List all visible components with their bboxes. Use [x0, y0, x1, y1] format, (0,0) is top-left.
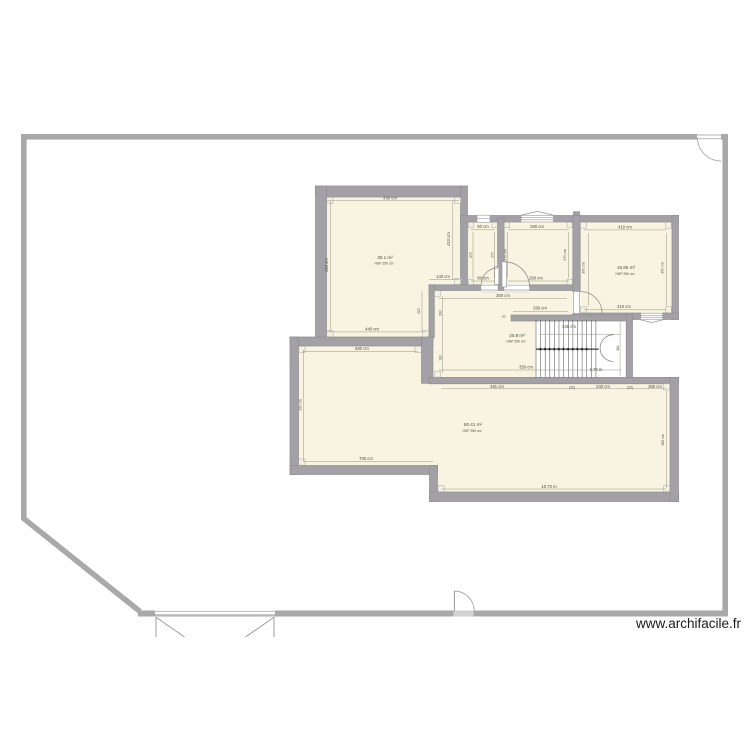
svg-text:20.8 m²: 20.8 m²: [509, 333, 525, 338]
svg-text:260 cm: 260 cm: [529, 276, 543, 281]
svg-text:350 cm: 350 cm: [582, 262, 586, 273]
svg-text:410 cm: 410 cm: [618, 224, 632, 229]
svg-text:260 cm: 260 cm: [530, 224, 544, 229]
svg-text:270 cm: 270 cm: [503, 249, 507, 260]
svg-text:410 cm: 410 cm: [446, 232, 451, 246]
svg-text:HSP 250 cm: HSP 250 cm: [463, 429, 482, 433]
svg-text:HSP 250 cm: HSP 250 cm: [507, 340, 526, 344]
svg-text:361: 361: [616, 345, 620, 351]
svg-text:30.1 m²: 30.1 m²: [377, 255, 393, 260]
svg-text:365 cm: 365 cm: [648, 384, 662, 389]
svg-text:385 cm: 385 cm: [661, 434, 665, 445]
svg-text:240 cm: 240 cm: [596, 384, 610, 389]
svg-text:HSP 250 cm: HSP 250 cm: [375, 262, 394, 266]
svg-text:345 cm: 345 cm: [562, 324, 576, 329]
svg-text:700 cm: 700 cm: [359, 456, 373, 461]
svg-text:410 cm: 410 cm: [617, 304, 631, 309]
svg-text:10.70 m: 10.70 m: [541, 484, 557, 489]
svg-text:300 cm: 300 cm: [496, 293, 510, 298]
svg-text:[20]: [20]: [627, 385, 632, 389]
svg-text:290: 290: [438, 310, 442, 316]
svg-text:15.95 m²: 15.95 m²: [617, 265, 636, 270]
svg-text:90 cm: 90 cm: [477, 276, 489, 281]
svg-text:www.archifacile.fr: www.archifacile.fr: [635, 616, 742, 631]
svg-text:410 cm: 410 cm: [324, 258, 329, 272]
svg-text:HSP 250 cm: HSP 250 cm: [616, 272, 635, 276]
svg-text:350 cm: 350 cm: [299, 399, 303, 410]
svg-text:350 cm: 350 cm: [519, 364, 533, 369]
svg-text:190: 190: [438, 355, 442, 361]
svg-text:560 cm: 560 cm: [355, 346, 369, 351]
svg-text:270: 270: [490, 252, 494, 258]
svg-text:260 cm: 260 cm: [533, 305, 547, 310]
svg-text:270: 270: [469, 252, 473, 258]
svg-text:90 cm: 90 cm: [477, 224, 489, 229]
svg-text:[20]: [20]: [569, 385, 574, 389]
svg-text:270 cm: 270 cm: [563, 249, 567, 260]
svg-text:350 cm: 350 cm: [661, 262, 665, 273]
svg-text:491 cm: 491 cm: [490, 384, 504, 389]
svg-text:440 cm: 440 cm: [365, 326, 379, 331]
svg-text:140 cm: 140 cm: [436, 274, 450, 279]
svg-text:2.70 m: 2.70 m: [590, 367, 603, 372]
svg-text:430 cm: 430 cm: [383, 195, 397, 200]
svg-text:60.41 m²: 60.41 m²: [464, 422, 483, 427]
svg-text:220: 220: [417, 308, 421, 314]
